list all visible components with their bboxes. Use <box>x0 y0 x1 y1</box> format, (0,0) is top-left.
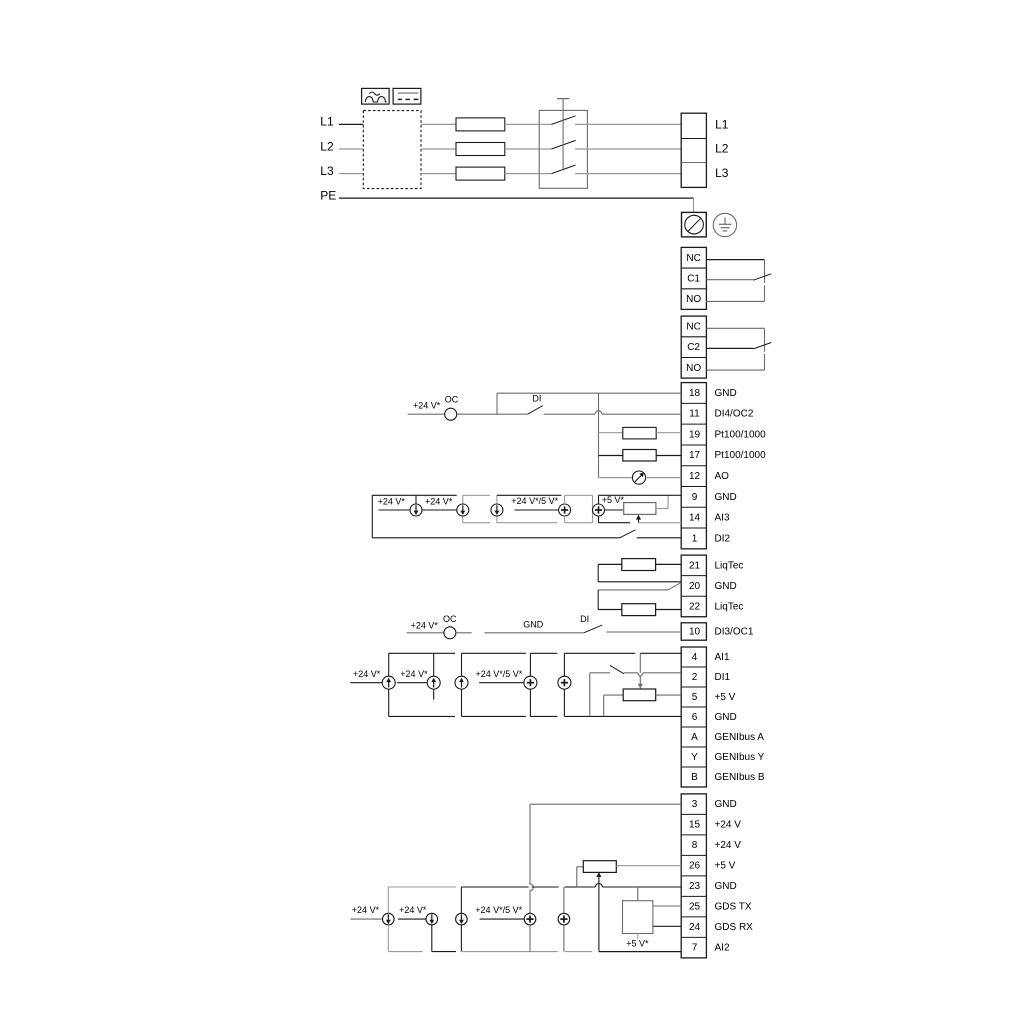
svg-text:DI3/OC1: DI3/OC1 <box>715 626 754 637</box>
svg-text:L1: L1 <box>320 115 334 129</box>
svg-text:+24 V*/5 V*: +24 V*/5 V* <box>476 669 523 679</box>
svg-text:Pt100/1000: Pt100/1000 <box>715 429 767 440</box>
svg-text:L3: L3 <box>320 164 334 178</box>
svg-text:17: 17 <box>689 450 701 461</box>
svg-text:PE: PE <box>320 188 336 202</box>
svg-text:+5 V: +5 V <box>715 861 736 872</box>
svg-text:GND: GND <box>715 881 737 892</box>
svg-text:22: 22 <box>689 601 701 612</box>
svg-text:GND: GND <box>715 712 737 723</box>
svg-text:4: 4 <box>692 652 698 663</box>
svg-text:GND: GND <box>715 581 737 592</box>
svg-text:GENIbus A: GENIbus A <box>715 732 765 743</box>
svg-text:GENIbus Y: GENIbus Y <box>715 752 765 763</box>
svg-text:GND: GND <box>523 619 544 629</box>
svg-text:NC: NC <box>686 321 700 332</box>
svg-text:+5 V*: +5 V* <box>602 495 625 505</box>
svg-text:+24 V*: +24 V* <box>425 497 453 507</box>
svg-text:+24 V*: +24 V* <box>400 669 428 679</box>
svg-text:GND: GND <box>715 388 737 399</box>
svg-text:11: 11 <box>689 409 700 420</box>
svg-text:+24 V*/5 V*: +24 V*/5 V* <box>511 496 558 506</box>
svg-text:21: 21 <box>689 560 701 571</box>
svg-text:+24 V*: +24 V* <box>378 497 406 507</box>
svg-text:L1: L1 <box>715 117 729 131</box>
svg-text:25: 25 <box>689 902 701 913</box>
svg-text:20: 20 <box>689 581 701 592</box>
svg-text:GND: GND <box>715 799 737 810</box>
svg-text:+24 V*: +24 V* <box>352 905 380 915</box>
svg-text:NC: NC <box>686 253 700 264</box>
svg-text:+24 V*: +24 V* <box>411 620 439 630</box>
svg-text:B: B <box>691 772 698 783</box>
svg-text:19: 19 <box>689 429 701 440</box>
svg-text:+24 V*/5 V*: +24 V*/5 V* <box>475 905 522 915</box>
svg-text:L2: L2 <box>715 142 729 156</box>
svg-text:GND: GND <box>715 492 737 503</box>
svg-text:LiqTec: LiqTec <box>715 601 744 612</box>
svg-text:NO: NO <box>686 294 701 305</box>
svg-text:LiqTec: LiqTec <box>715 560 744 571</box>
svg-text:DI: DI <box>580 614 589 624</box>
svg-text:26: 26 <box>689 861 701 872</box>
svg-text:23: 23 <box>689 881 701 892</box>
svg-text:AO: AO <box>715 471 730 482</box>
svg-text:AI2: AI2 <box>715 943 730 954</box>
svg-text:C2: C2 <box>687 342 700 353</box>
svg-text:DI1: DI1 <box>715 672 731 683</box>
svg-text:Y: Y <box>691 752 698 763</box>
svg-text:DI2: DI2 <box>715 533 731 544</box>
svg-text:8: 8 <box>692 840 698 851</box>
svg-text:+5 V: +5 V <box>715 692 736 703</box>
svg-text:AI3: AI3 <box>715 513 730 524</box>
svg-text:GDS RX: GDS RX <box>715 922 754 933</box>
svg-text:L2: L2 <box>320 140 334 154</box>
svg-text:DI: DI <box>532 394 541 404</box>
svg-text:24: 24 <box>689 922 701 933</box>
svg-text:5: 5 <box>692 692 698 703</box>
svg-text:6: 6 <box>692 712 698 723</box>
svg-text:AI1: AI1 <box>715 652 730 663</box>
svg-text:1: 1 <box>692 533 698 544</box>
svg-text:+5 V*: +5 V* <box>626 939 649 949</box>
svg-text:+24 V*: +24 V* <box>399 905 427 915</box>
svg-text:Pt100/1000: Pt100/1000 <box>715 450 767 461</box>
svg-text:12: 12 <box>689 471 701 482</box>
svg-text:+24 V*: +24 V* <box>413 401 441 411</box>
svg-text:18: 18 <box>689 388 701 399</box>
svg-text:GDS TX: GDS TX <box>715 902 752 913</box>
svg-text:C1: C1 <box>687 273 700 284</box>
svg-text:14: 14 <box>689 513 701 524</box>
svg-text:+24 V*: +24 V* <box>353 669 381 679</box>
svg-text:10: 10 <box>689 626 701 637</box>
svg-text:7: 7 <box>692 943 698 954</box>
svg-text:2: 2 <box>692 672 698 683</box>
svg-text:3: 3 <box>692 799 698 810</box>
svg-text:OC: OC <box>443 614 457 624</box>
svg-text:9: 9 <box>692 492 698 503</box>
svg-text:DI4/OC2: DI4/OC2 <box>715 409 754 420</box>
svg-text:OC: OC <box>445 394 459 404</box>
svg-text:A: A <box>691 732 698 743</box>
svg-text:15: 15 <box>689 820 701 831</box>
svg-text:L3: L3 <box>715 166 729 180</box>
svg-text:+24 V: +24 V <box>715 820 742 831</box>
svg-text:GENIbus B: GENIbus B <box>715 772 765 783</box>
svg-text:NO: NO <box>686 363 701 374</box>
svg-text:+24 V: +24 V <box>715 840 742 851</box>
